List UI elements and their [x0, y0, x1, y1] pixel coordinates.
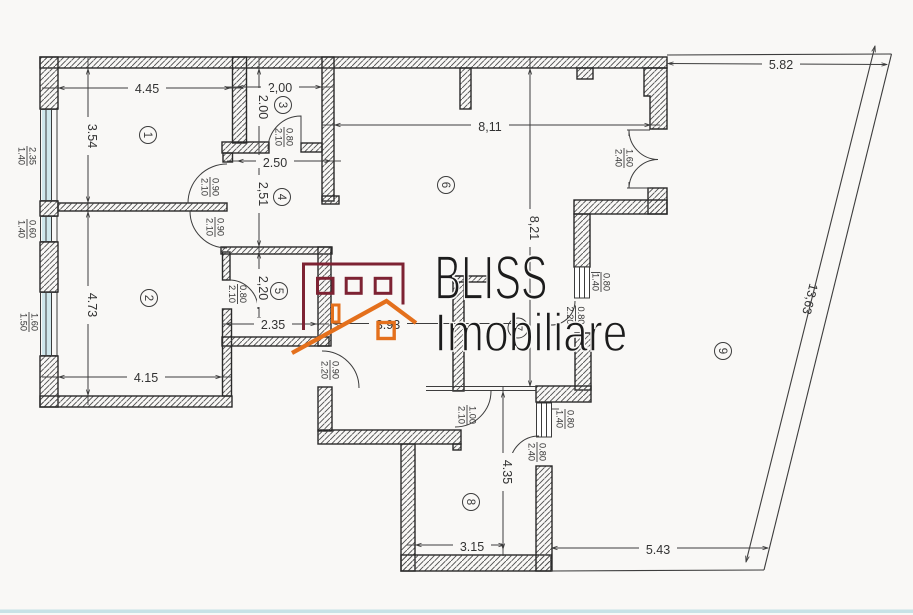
svg-text:5.43: 5.43 — [646, 543, 670, 557]
svg-text:3.15: 3.15 — [460, 540, 484, 554]
svg-text:0.90: 0.90 — [211, 178, 221, 196]
svg-text:1.60: 1.60 — [30, 313, 40, 331]
svg-text:2.00: 2.00 — [256, 95, 270, 119]
svg-text:5.82: 5.82 — [769, 58, 793, 72]
svg-text:1.00: 1.00 — [468, 406, 478, 424]
svg-text:0.80: 0.80 — [566, 410, 576, 428]
svg-text:Imobiliare: Imobiliare — [435, 303, 628, 363]
svg-text:0.60: 0.60 — [28, 220, 38, 238]
svg-text:2.40: 2.40 — [614, 149, 624, 167]
svg-text:8,21: 8,21 — [527, 216, 541, 240]
svg-text:3.54: 3.54 — [85, 124, 99, 148]
svg-text:4.45: 4.45 — [135, 82, 159, 96]
svg-text:3: 3 — [276, 102, 288, 108]
svg-text:1.60: 1.60 — [625, 149, 635, 167]
svg-text:2,51: 2,51 — [256, 182, 270, 206]
svg-text:6: 6 — [439, 182, 451, 188]
svg-text:4.15: 4.15 — [134, 371, 158, 385]
svg-text:8,11: 8,11 — [478, 120, 501, 134]
svg-text:2.20: 2.20 — [320, 361, 330, 379]
svg-text:5: 5 — [272, 288, 284, 294]
svg-text:9: 9 — [716, 348, 728, 354]
svg-text:2.10: 2.10 — [200, 178, 210, 196]
svg-text:1.50: 1.50 — [19, 313, 29, 331]
svg-text:2.35: 2.35 — [261, 318, 285, 332]
svg-text:1: 1 — [141, 132, 153, 138]
svg-text:2.35: 2.35 — [28, 147, 38, 165]
svg-text:2.10: 2.10 — [457, 406, 467, 424]
svg-text:1.40: 1.40 — [555, 410, 565, 428]
svg-text:2.50: 2.50 — [263, 156, 287, 170]
svg-text:1.40: 1.40 — [17, 147, 27, 165]
svg-text:1.40: 1.40 — [17, 220, 27, 238]
svg-text:0.80: 0.80 — [238, 285, 248, 303]
svg-text:2.10: 2.10 — [274, 128, 284, 146]
svg-text:0.80: 0.80 — [538, 443, 548, 461]
svg-text:0.80: 0.80 — [285, 128, 295, 146]
svg-text:0.80: 0.80 — [602, 273, 612, 291]
svg-text:4.73: 4.73 — [85, 293, 99, 317]
svg-text:2.40: 2.40 — [527, 443, 537, 461]
svg-text:1.40: 1.40 — [591, 273, 601, 291]
svg-text:4.35: 4.35 — [500, 460, 514, 484]
svg-text:8: 8 — [464, 499, 476, 505]
svg-text:2.10: 2.10 — [205, 218, 215, 236]
svg-text:4: 4 — [275, 194, 287, 201]
svg-text:0.90: 0.90 — [216, 218, 226, 236]
svg-text:0.90: 0.90 — [331, 361, 341, 379]
svg-text:2,20: 2,20 — [256, 276, 270, 300]
svg-text:2,00: 2,00 — [268, 81, 292, 95]
svg-text:2: 2 — [142, 295, 154, 301]
svg-text:2.10: 2.10 — [227, 285, 237, 303]
